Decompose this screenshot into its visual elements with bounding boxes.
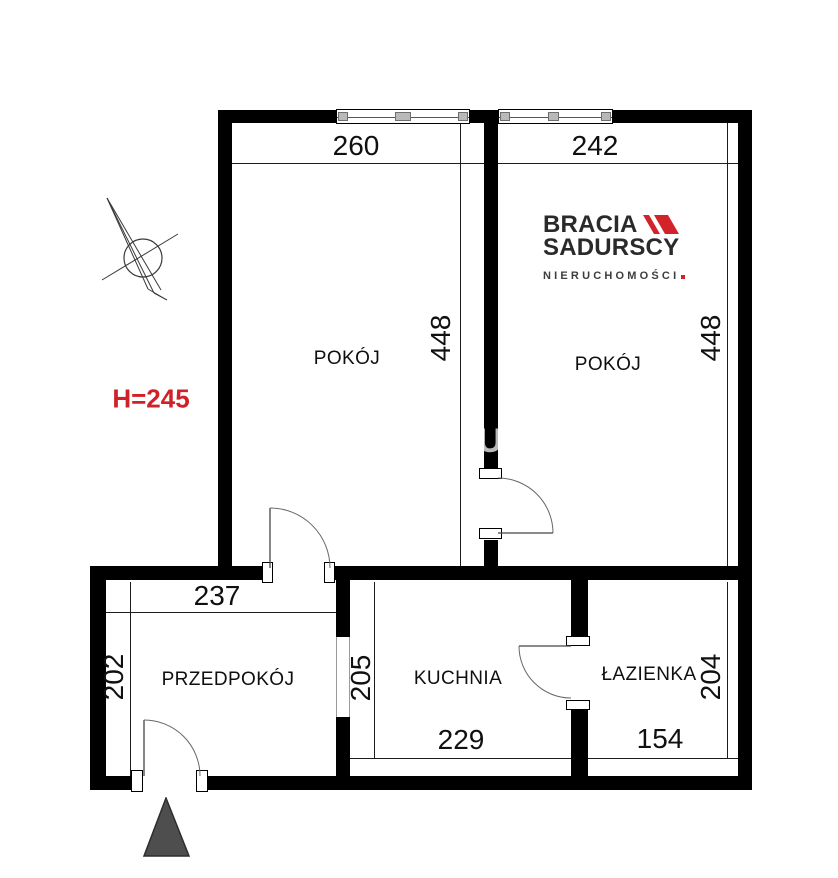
dim-room-left-width: 260 (333, 130, 380, 162)
room-label-przedpokoj: PRZEDPOKÓJ (162, 669, 295, 691)
floor-plan: U BRACIA SADURSCY NIERUCHOMOŚCI H=245 PO… (0, 0, 838, 878)
bottom-wall-right (208, 776, 752, 790)
logo-line1: BRACIA (543, 213, 638, 236)
dim-line (350, 758, 738, 759)
divider-wall-left (90, 566, 263, 580)
dim-line (460, 123, 461, 566)
dim-bathroom-depth: 204 (695, 654, 727, 701)
window-icon (498, 109, 613, 124)
dim-kitchen-width: 229 (438, 724, 485, 756)
dim-line (498, 163, 738, 164)
dim-line (130, 582, 131, 776)
door-swing-icon (510, 638, 580, 708)
entrance-marker-icon (143, 797, 190, 858)
room-label-lazienka: ŁAZIENKA (601, 664, 696, 686)
dim-hallway-depth: 202 (98, 654, 130, 701)
bottom-wall-left (90, 776, 132, 790)
left-upper-wall (218, 110, 232, 580)
logo-flag-icon (643, 215, 679, 235)
middle-wall-upper (484, 110, 498, 469)
watermark-letter: U (484, 422, 498, 461)
dim-line (232, 163, 484, 164)
dim-room-left-depth: 448 (425, 315, 457, 362)
dim-line (727, 123, 728, 566)
logo-line2: SADURSCY (543, 236, 685, 259)
window-icon (336, 109, 470, 124)
door-swing-icon (260, 500, 340, 580)
dim-hallway-width: 237 (194, 580, 241, 612)
right-wall (738, 110, 752, 790)
kitchen-bath-wall-top (571, 566, 588, 638)
dim-room-right-width: 242 (572, 130, 619, 162)
room-label-pokoj-left: POKÓJ (314, 348, 380, 370)
dim-room-right-depth: 448 (695, 315, 727, 362)
room-label-pokoj-right: POKÓJ (575, 354, 641, 376)
brand-logo: BRACIA SADURSCY NIERUCHOMOŚCI (543, 213, 685, 288)
ceiling-height-note: H=245 (112, 384, 189, 415)
north-arrow-icon (88, 186, 203, 304)
room-label-kuchnia: KUCHNIA (414, 668, 502, 690)
door-swing-icon (135, 712, 210, 782)
logo-line3: NIERUCHOMOŚCI (543, 265, 679, 288)
watermark-fragment: U (484, 422, 498, 462)
dim-line (106, 612, 336, 613)
door-swing-icon (490, 470, 565, 540)
dim-bathroom-width: 154 (637, 723, 684, 755)
dim-line (727, 582, 728, 758)
divider-wall-right (334, 566, 752, 580)
logo-red-dot (681, 275, 685, 279)
dim-kitchen-depth: 205 (345, 655, 377, 702)
